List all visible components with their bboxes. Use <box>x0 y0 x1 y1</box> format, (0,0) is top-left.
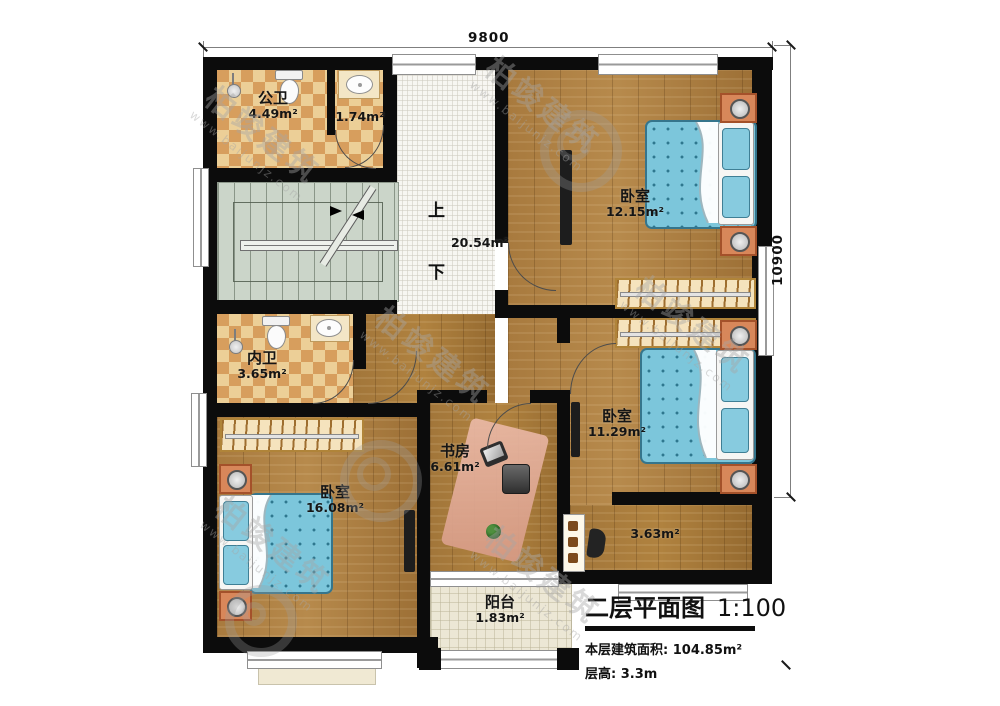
pillow <box>223 501 249 541</box>
dimension-right-value: 10900 <box>770 230 786 290</box>
room-area: 1.74m² <box>328 110 392 124</box>
lamp-icon <box>227 597 247 617</box>
bed-blanket-wave <box>688 122 718 223</box>
stair-handrail <box>240 240 398 251</box>
wall-exterior-left <box>203 57 217 653</box>
nightstand <box>720 464 757 494</box>
wall-bedroomright-left-upper <box>557 318 570 343</box>
room-name: 公卫 <box>238 90 308 107</box>
wall-bath-bottom <box>203 168 397 182</box>
sink-icon <box>316 319 342 337</box>
room-name: 卧室 <box>577 408 657 425</box>
room-area: 16.08m² <box>295 501 375 515</box>
wardrobe-bedroom-left <box>220 418 364 452</box>
hall-closet <box>563 514 585 572</box>
label-small-bath: 1.74m² <box>328 110 392 124</box>
room-area: 3.65m² <box>227 367 297 381</box>
nightstand <box>720 93 757 123</box>
label-hallway: 20.54m² <box>448 236 512 250</box>
room-area: 4.49m² <box>238 107 308 121</box>
wall-stairs-bottom <box>203 300 397 314</box>
closet-item <box>568 537 578 547</box>
sink-icon <box>346 75 373 94</box>
lamp-icon <box>730 232 750 252</box>
floorplan-canvas: 公卫 4.49m² 1.74m² 20.54m² 卧室 12.15m² 内卫 3… <box>0 0 1000 706</box>
room-area: 11.29m² <box>577 425 657 439</box>
window-stairs-left <box>193 168 209 267</box>
computer-tower-icon <box>502 464 530 494</box>
lamp-icon <box>730 326 750 346</box>
tv-bedroom-top <box>560 150 572 245</box>
lamp-icon <box>227 470 247 490</box>
dimension-line-top <box>203 47 773 48</box>
window-bedroomleft-left <box>191 393 207 467</box>
room-area: 3.63m² <box>620 527 690 541</box>
plan-title: 二层平面图 <box>585 588 705 623</box>
wall-innerbath-right <box>353 314 366 369</box>
bed-blanket-wave <box>251 495 279 588</box>
nightstand <box>219 591 252 621</box>
dimension-ext <box>774 497 791 498</box>
wall-study-top-right <box>530 390 570 403</box>
window-bedroomleft-bottom <box>247 651 382 669</box>
label-bedroom-left: 卧室 16.08m² <box>295 484 375 516</box>
wall-bedroomtop-left-upper <box>495 57 508 243</box>
room-name: 书房 <box>415 443 495 460</box>
dimension-ext <box>774 45 791 46</box>
pillow <box>721 408 749 453</box>
pillow <box>223 545 249 585</box>
label-balcony: 阳台 1.83m² <box>460 594 540 626</box>
stair-arrow-icon <box>352 210 364 220</box>
label-public-bath: 公卫 4.49m² <box>238 90 308 122</box>
plan-scale: 1:100 <box>717 594 786 622</box>
label-study: 书房 6.61m² <box>415 443 495 475</box>
lamp-icon <box>730 99 750 119</box>
room-area: 12.15m² <box>595 205 675 219</box>
room-name: 卧室 <box>595 188 675 205</box>
room-name: 内卫 <box>227 350 297 367</box>
nightstand <box>720 320 757 350</box>
lamp-icon <box>730 470 750 490</box>
nightstand <box>720 226 757 256</box>
window-balcony-slider <box>430 571 559 587</box>
balcony-post <box>557 648 579 670</box>
window-hall-top <box>392 54 476 75</box>
pillow <box>722 176 750 218</box>
pillow <box>722 128 750 170</box>
wall-corridor-bottom <box>570 570 772 584</box>
room-area: 20.54m² <box>448 236 512 250</box>
dimension-top-value: 9800 <box>468 30 510 46</box>
closet-item <box>568 521 578 531</box>
dimension-line-right <box>790 45 791 497</box>
label-inner-bath: 内卫 3.65m² <box>227 350 297 382</box>
label-corridor: 3.63m² <box>620 527 690 541</box>
wall-innerbath-bottom <box>203 403 417 417</box>
title-underline <box>585 626 755 631</box>
floor-height-line: 层高: 3.3m <box>585 663 786 682</box>
floor-area-line: 本层建筑面积: 104.85m² <box>585 639 786 658</box>
closet-item <box>568 553 578 563</box>
floor-hallway <box>397 70 495 315</box>
stairs-down-label: 下 <box>428 258 445 283</box>
label-bedroom-top: 卧室 12.15m² <box>595 188 675 220</box>
room-area: 6.61m² <box>415 460 495 474</box>
label-bedroom-right: 卧室 11.29m² <box>577 408 657 440</box>
wall-bedroomleft-right <box>417 390 430 583</box>
pillow <box>721 357 749 402</box>
balcony-railing <box>433 650 569 669</box>
wardrobe-bedroom-top <box>615 278 756 309</box>
window-bedroomtop-top <box>598 54 718 75</box>
balcony-post <box>419 648 441 670</box>
stairs-up-label: 上 <box>428 196 445 221</box>
bed-blanket-wave <box>686 350 716 458</box>
room-name: 阳台 <box>460 594 540 611</box>
tv-bedroom-left <box>404 510 415 572</box>
title-block: 二层平面图 1:100 本层建筑面积: 104.85m² 层高: 3.3m <box>585 588 786 687</box>
room-area: 1.83m² <box>460 611 540 625</box>
stair-arrow-icon <box>330 206 342 216</box>
plant-icon <box>486 524 501 539</box>
room-name: 卧室 <box>295 484 375 501</box>
nightstand <box>219 464 252 494</box>
